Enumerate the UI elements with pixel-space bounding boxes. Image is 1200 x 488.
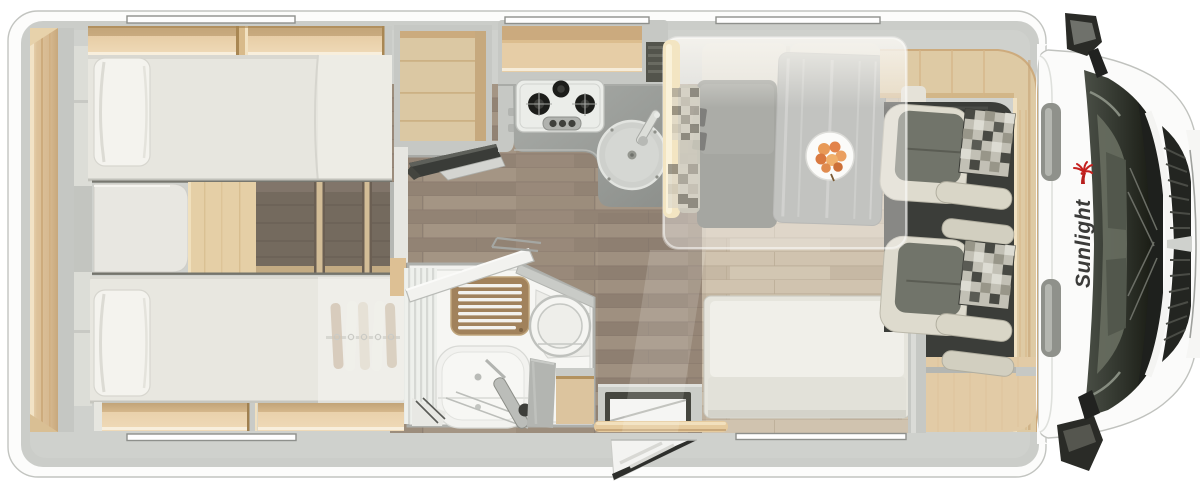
svg-text:Sunlight: Sunlight (1072, 199, 1095, 288)
